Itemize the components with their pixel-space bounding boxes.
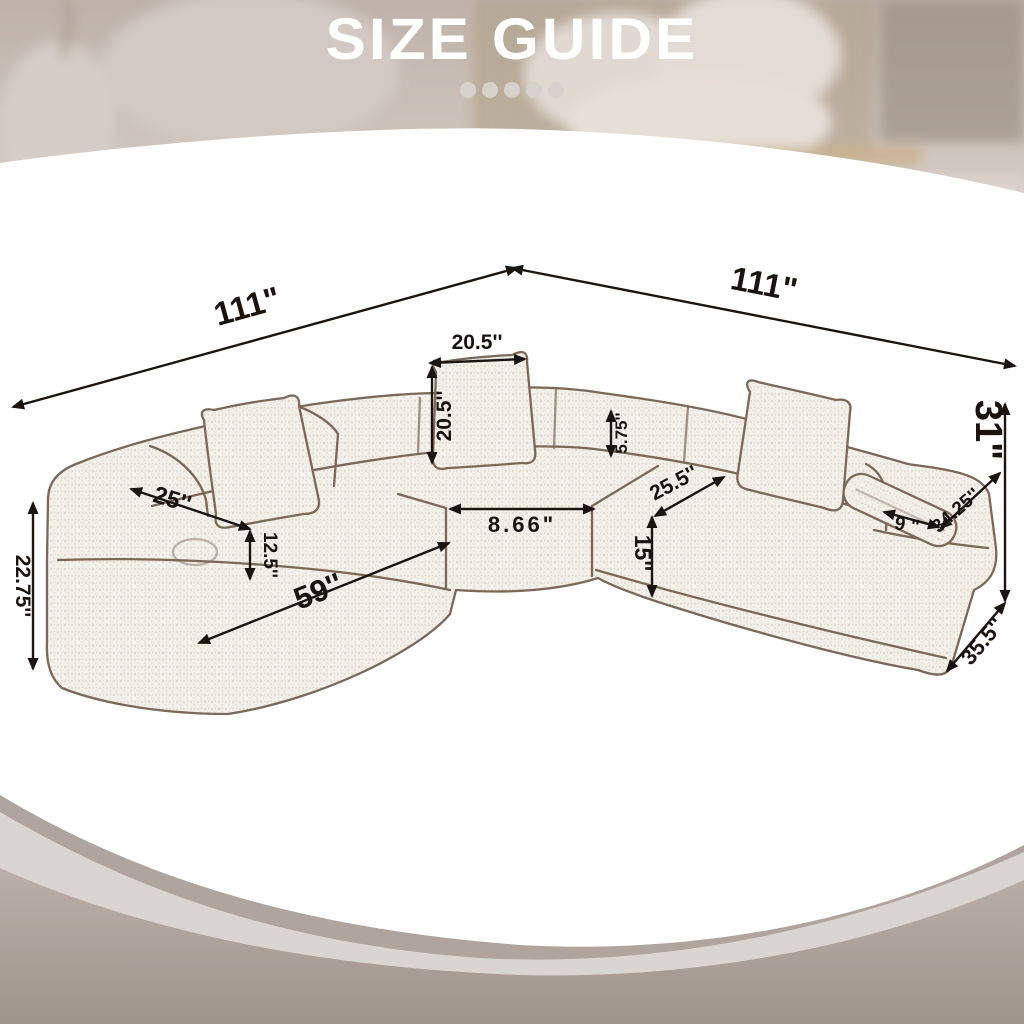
dim-label-total-width-right: 111": [728, 259, 801, 308]
dot-icon: [504, 82, 520, 98]
dot-icon: [482, 82, 498, 98]
dim-label-back-pillow-width: 20.5'': [452, 331, 503, 354]
size-guide-infographic: SIZE GUIDE: [0, 0, 1024, 1024]
dot-icon: [548, 82, 564, 98]
dim-label-right-seat-height: 15'': [630, 535, 656, 572]
dim-label-seat-cushion-height: 12.5'': [259, 532, 280, 578]
dim-label-total-width-left: 111": [210, 279, 285, 333]
page-title: SIZE GUIDE: [0, 6, 1024, 73]
dim-label-left-arm-height: 22.75'': [11, 555, 34, 618]
dot-icon: [526, 82, 542, 98]
dot-icon: [460, 82, 476, 98]
dim-label-back-pillow-height: 20.5'': [433, 391, 456, 442]
dim-label-overall-height: 31": [967, 400, 1009, 460]
dots-divider: [0, 82, 1024, 98]
dim-label-armrest-width: 9 ": [893, 513, 921, 538]
right-pillow: [737, 380, 850, 510]
sofa-size-diagram: 111" 111" 20.5'' 20.5'' 5.75'' 31" 34.25…: [0, 0, 1024, 1024]
dim-label-back-rest-height: 5.75'': [612, 412, 631, 453]
dim-label-center-seat-width: 8.66": [488, 512, 556, 537]
left-pillow: [202, 396, 319, 528]
